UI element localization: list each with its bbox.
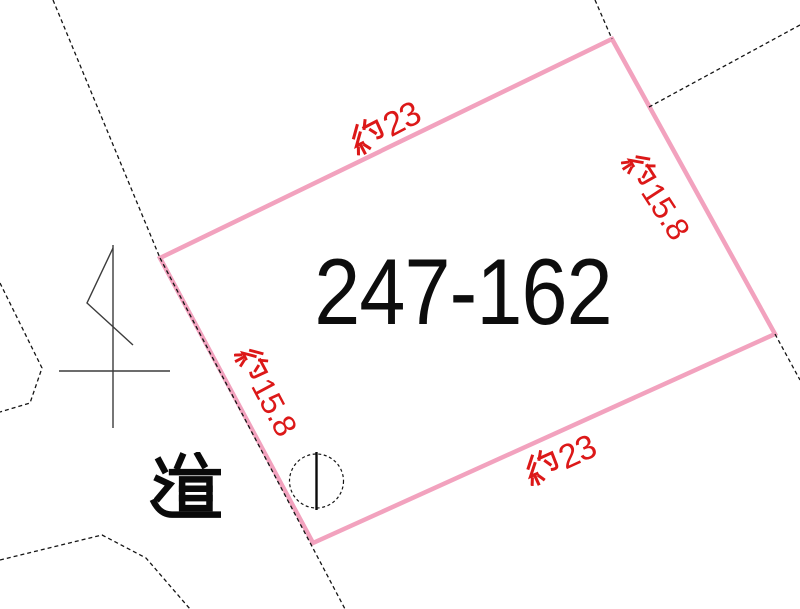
road-label [149, 452, 221, 524]
boundary-line-top-right [649, 25, 800, 107]
kanji-michi-icon [149, 452, 221, 524]
parcel-id: 247-162 [314, 245, 611, 339]
boundary-line-right [775, 334, 800, 380]
pole-mark-icon [59, 245, 170, 428]
boundary-line-bottom-left [0, 535, 190, 609]
cadastral-map: 247-162 23 15.8 23 15.8 [0, 0, 800, 609]
boundary-line-top [595, 0, 612, 39]
boundary-line-top-left [53, 0, 160, 258]
circle-marker-icon [290, 452, 344, 510]
boundary-line-far-left [0, 283, 42, 412]
